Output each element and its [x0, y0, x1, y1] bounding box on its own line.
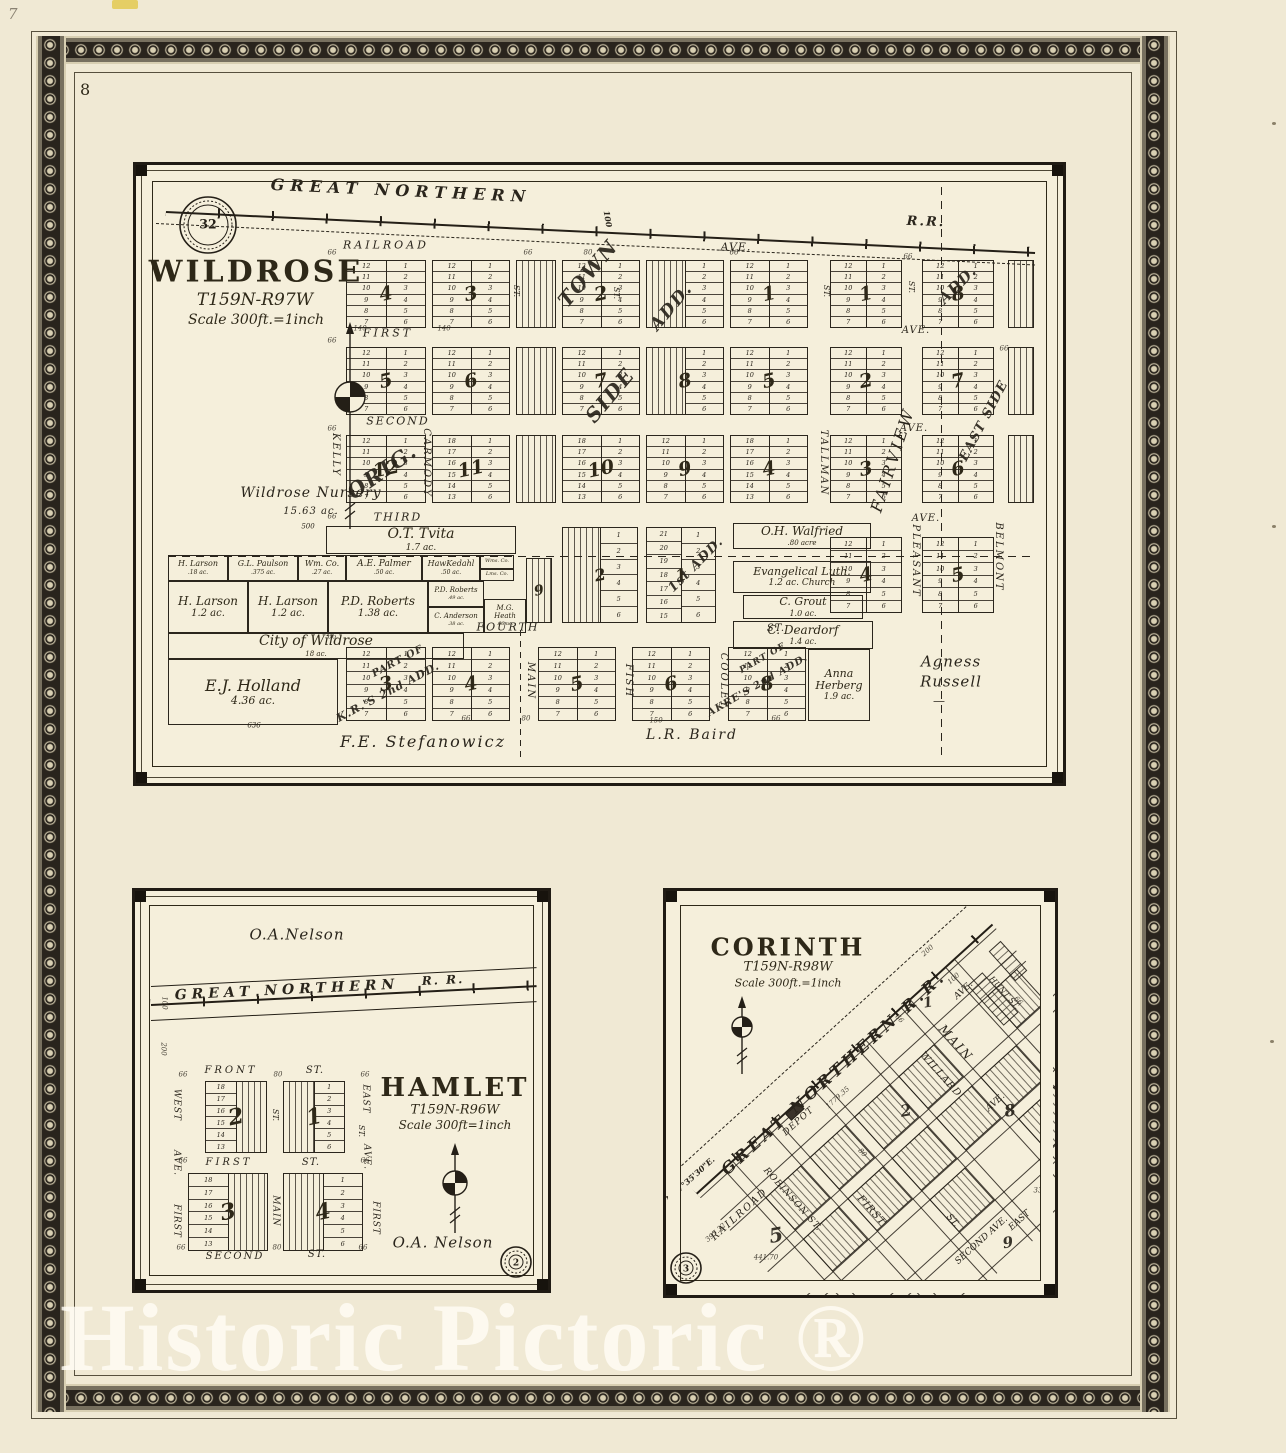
compass-rose — [725, 994, 759, 1080]
owner-label: 636 — [247, 723, 260, 730]
owner-label: Agness — [921, 655, 981, 670]
svg-text:32: 32 — [199, 217, 217, 232]
lot-number: 2 — [387, 358, 426, 369]
lot-number: 11 — [731, 358, 769, 369]
parcel-area: .375 ac. — [251, 569, 275, 576]
lot-number: 6 — [472, 491, 510, 502]
wildrose-title: WILDROSE — [149, 255, 363, 290]
parcel-area: 18 ac. — [305, 650, 326, 658]
lot-number: 5 — [578, 696, 616, 708]
lot-number: 18 — [731, 436, 769, 446]
owner-name: G.L. Paulson — [238, 560, 289, 569]
lot-number: 5 — [867, 587, 902, 600]
lot-number: 6 — [686, 403, 724, 414]
lot-number: 6 — [578, 708, 616, 720]
lot-number: 5 — [472, 305, 510, 316]
lot-number: 1 — [867, 348, 902, 358]
lot-number: 5 — [324, 1224, 363, 1237]
owner-name: P.D. Roberts — [341, 595, 415, 608]
street-label: EAST — [361, 1084, 370, 1113]
lot-number: 14 — [189, 1224, 228, 1237]
lot-number: 18 — [206, 1082, 236, 1093]
lot-number: 6 — [959, 600, 994, 613]
street-label: FIRST — [363, 328, 413, 339]
street-label: ST. — [302, 1158, 320, 1168]
dimension-label: 66 — [361, 1072, 370, 1079]
plat-block — [1008, 435, 1034, 503]
lot-number: 6 — [601, 606, 638, 622]
parcel-area: .50 ac. — [374, 569, 394, 576]
lot-number: 7 — [731, 403, 769, 414]
dimension-label: 100 — [161, 996, 168, 1009]
lot-number: 17 — [189, 1186, 228, 1199]
lot-number: 6 — [672, 708, 710, 720]
lot-number: 12 — [831, 436, 866, 446]
corner-square — [136, 165, 147, 176]
lot-number: 6 — [867, 316, 902, 327]
owner-label: L.R. Baird — [646, 728, 738, 742]
lot-number: 8 — [433, 392, 471, 403]
dimension-label: 66 — [524, 250, 533, 257]
street-label: WEST — [172, 1089, 181, 1121]
lot-number: 7 — [433, 403, 471, 414]
owner-label: O.A.Nelson — [250, 928, 345, 943]
street-label: PLEASANT — [910, 524, 920, 597]
lot-number: 14 — [731, 480, 769, 491]
owner-name: City of Wildrose — [259, 634, 373, 649]
lot-number: 6 — [315, 1140, 345, 1152]
lot-number: 6 — [387, 403, 426, 414]
lot-number: 2 — [770, 271, 808, 282]
owner-name: Lms. Co. — [486, 572, 508, 578]
hamlet-title: HAMLET — [381, 1073, 530, 1103]
parcel-area: 1.38 ac. — [358, 608, 398, 619]
lot-number: 6 — [472, 403, 510, 414]
lot-number: 5 — [472, 392, 510, 403]
lot-number: 12 — [923, 538, 958, 550]
dimension-label: 66 — [1000, 346, 1009, 353]
plat-block — [516, 435, 556, 503]
lot-number: 5 — [959, 305, 994, 316]
parcel-area: .38 ac. — [448, 621, 465, 627]
section-stamp: 2 — [498, 1244, 534, 1280]
parcel-area: .80 acre — [788, 539, 817, 547]
lot-number: 7 — [647, 491, 685, 502]
lot-number: 11 — [923, 550, 958, 563]
lot-number: 17 — [731, 446, 769, 457]
lot-number: 6 — [472, 316, 510, 327]
plat-block: 1211109871234569 — [646, 435, 724, 503]
owner-name: Anna Herberg — [809, 668, 869, 692]
lot-number: 1 — [472, 261, 510, 271]
lot-number: 11 — [433, 271, 471, 282]
dimension-label: 66 — [179, 1072, 188, 1079]
owner-label: F.E. Stefanowicz — [340, 734, 506, 750]
margin-dot — [1272, 525, 1276, 528]
plat-block: 1211109871234561 — [730, 260, 808, 328]
lot-number: 2 — [686, 271, 724, 282]
street-label: ST. — [308, 1250, 326, 1260]
street-label: FRONT — [204, 1066, 257, 1076]
lot-number: 7 — [731, 316, 769, 327]
lot-number: 5 — [672, 696, 710, 708]
lot-number: 5 — [959, 480, 994, 491]
lot-number: 6 — [682, 606, 716, 622]
watermark: Historic Pictoric ® — [60, 1282, 868, 1393]
lot-number: 6 — [867, 600, 902, 613]
lot-number: 1 — [770, 348, 808, 358]
dimension-label: 66 — [359, 1245, 368, 1252]
railroad-label: GREAT NORTHERN — [270, 177, 531, 205]
lot-number: 2 — [672, 659, 710, 671]
lot-number: 1 — [472, 348, 510, 358]
street-label: AVE. — [902, 326, 930, 336]
svg-text:3: 3 — [683, 1265, 689, 1275]
lot-number: 1 — [472, 436, 510, 446]
plat-block: 1234562 — [562, 527, 638, 623]
owner-name: O.T. Tvita — [388, 527, 455, 542]
street-label: ST. — [512, 285, 520, 297]
owner-parcel: Wm. Co..27 ac. — [298, 555, 346, 581]
owner-parcel: H. Larson1.2 ac. — [248, 581, 328, 633]
lot-number: 12 — [539, 648, 577, 659]
owner-parcel: O.H. Walfried.80 acre — [733, 523, 871, 549]
corner-square — [666, 891, 677, 902]
corner-square — [537, 891, 548, 902]
lot-number: 1 — [867, 538, 902, 550]
lot-number: 18 — [189, 1174, 228, 1186]
lot-number: 11 — [923, 358, 958, 369]
owner-name: C. Grout — [779, 596, 826, 608]
parcel-area: 1.9 ac. — [824, 692, 854, 702]
owner-label: Russell — [920, 675, 982, 690]
street-label: ST. — [357, 1125, 365, 1137]
owner-parcel: A.E. Palmer.50 ac. — [346, 555, 422, 581]
lot-number: 7 — [539, 708, 577, 720]
lot-number: 6 — [387, 316, 426, 327]
lot-number: 8 — [831, 392, 866, 403]
lot-number: 1 — [315, 1082, 345, 1093]
lot-number: 12 — [831, 348, 866, 358]
street-label: SECOND — [206, 1252, 265, 1262]
owner-parcel: H. Larson1.2 ac. — [168, 581, 248, 633]
street-label: FIRST — [206, 1158, 253, 1168]
lot-number: 2 — [959, 550, 994, 563]
lot-number: 1 — [686, 261, 724, 271]
lot-number: 11 — [539, 659, 577, 671]
lot-number: 2 — [601, 543, 638, 559]
lot-number: 5 — [768, 696, 806, 708]
corinth-plat-map: CORINTH T159N-R98W Scale 300ft.=1inch GR… — [663, 888, 1058, 1298]
parcel-area: 1.2 ac. — [191, 608, 225, 619]
dimension-label: 66 — [730, 250, 739, 257]
parcel-area: 4.36 ac. — [231, 694, 275, 707]
owner-name: E.J. Holland — [205, 677, 301, 695]
lot-number: 12 — [831, 261, 866, 271]
lot-number: 8 — [831, 480, 866, 491]
lot-number: 5 — [682, 590, 716, 606]
lot-strip — [929, 1167, 994, 1232]
owner-name: C. Anderson — [434, 613, 477, 621]
lot-number: 2 — [867, 358, 902, 369]
map-margin — [1041, 893, 1053, 1293]
dimension-label: 66 — [361, 1158, 370, 1165]
lot-number: 12 — [731, 261, 769, 271]
street-label: AVE. — [912, 514, 940, 524]
lot-number: 2 — [867, 550, 902, 563]
lot-number: 11 — [433, 358, 471, 369]
dimension-label: 80 — [522, 716, 531, 723]
lot-number: 12 — [433, 348, 471, 358]
lot-number: 17 — [433, 446, 471, 457]
lot-number: 17 — [563, 446, 601, 457]
lot-number: 6 — [770, 316, 808, 327]
lot-number: 1 — [472, 648, 510, 659]
lot-number: 2 — [602, 271, 640, 282]
corinth-township: T159N-R98W — [744, 960, 833, 975]
owner-name: Wms. Co. — [485, 559, 509, 565]
lot-number: 8 — [347, 305, 386, 316]
lot-number: 11 — [647, 446, 685, 457]
lot-number: 2 — [387, 271, 426, 282]
lot-number: 11 — [923, 446, 958, 457]
lot-number: 7 — [923, 491, 958, 502]
lot-number: 12 — [563, 348, 601, 358]
lot-number: 8 — [923, 305, 958, 316]
hamlet-plat-map: HAMLET T159N-R96W Scale 300ft=1inch GREA… — [132, 888, 551, 1293]
lot-number: 7 — [831, 316, 866, 327]
lot-number: 12 — [633, 648, 671, 659]
lot-number: 8 — [539, 696, 577, 708]
lot-number: 5 — [387, 305, 426, 316]
lot-number: 15 — [647, 608, 681, 622]
lot-number: 6 — [959, 491, 994, 502]
lot-number: 5 — [867, 305, 902, 316]
owner-name: H. Larson — [178, 595, 238, 608]
street-label: ST. — [907, 281, 915, 293]
owner-label: — — [933, 695, 945, 707]
owner-parcel: P.D. Roberts.49 ac. — [428, 581, 484, 607]
parcel-area: .50 ac. — [441, 569, 461, 576]
lot-number: 2 — [472, 271, 510, 282]
lot-number: 8 — [831, 305, 866, 316]
lot-number: 1 — [387, 261, 426, 271]
corner-square — [1052, 772, 1063, 783]
parcel-area: 1.2 ac. — [271, 608, 305, 619]
lot-number: 5 — [601, 590, 638, 606]
lot-number: 6 — [472, 708, 510, 720]
railroad-label: R.R. — [906, 215, 945, 229]
lot-number: 5 — [770, 480, 808, 491]
lot-number: 2 — [578, 659, 616, 671]
block-number: 9 — [533, 582, 546, 600]
lot-number: 2 — [472, 358, 510, 369]
lot-number: 11 — [633, 659, 671, 671]
lot-number: 1 — [686, 348, 724, 358]
plat-block: 1211109871234562 — [830, 347, 902, 415]
plat-block: 1234561 — [283, 1081, 345, 1153]
compass-rose — [438, 1141, 472, 1239]
street-label: FOURTH — [477, 622, 540, 633]
street-label: THIRD — [374, 512, 422, 523]
plat-block — [1008, 347, 1034, 415]
lot-number: 1 — [959, 348, 994, 358]
lot-number: 8 — [433, 696, 471, 708]
lot-strip — [892, 1126, 957, 1191]
lot-number: 5 — [602, 305, 640, 316]
lot-number: 1 — [770, 261, 808, 271]
dimension-label: 80 — [273, 1245, 282, 1252]
lot-number: 12 — [923, 436, 958, 446]
parcel-area: .18 ac. — [188, 569, 208, 576]
compass-rose — [333, 320, 367, 535]
street-label: RAILROAD — [343, 240, 429, 251]
margin-dot — [1270, 1040, 1274, 1043]
dimension-label: 80 — [274, 1072, 283, 1079]
lot-number: 8 — [923, 587, 958, 600]
wildrose-plat-map: WILDROSE T159N-R97W Scale 300ft.=1inch G… — [133, 162, 1066, 786]
lot-number: 12 — [433, 261, 471, 271]
railroad-label: 100 — [603, 210, 614, 228]
street-label: ST. — [612, 287, 620, 299]
lot-number: 13 — [189, 1237, 228, 1250]
lot-number: 1 — [672, 648, 710, 659]
owner-parcel: E.J. Holland4.36 ac. — [168, 659, 338, 725]
owner-name: A.E. Palmer — [357, 560, 411, 570]
owner-parcel: Wms. Co. — [480, 555, 514, 569]
owner-parcel: Evangelical Luth.1.2 ac. Church — [733, 561, 871, 593]
lot-number: 1 — [867, 261, 902, 271]
lot-number: 16 — [647, 595, 681, 609]
lot-number: 5 — [602, 480, 640, 491]
lot-number: 5 — [686, 480, 724, 491]
lot-number: 6 — [686, 491, 724, 502]
lot-number: 2 — [867, 271, 902, 282]
section-stamp: 3 — [668, 1250, 704, 1286]
lot-number: 1 — [959, 538, 994, 550]
corner-square — [136, 772, 147, 783]
parcel-area: .49 ac. — [448, 595, 465, 601]
hamlet-township: T159N-R96W — [411, 1103, 500, 1118]
lot-number: 5 — [686, 305, 724, 316]
plat-block: 1211109871234566 — [632, 647, 710, 721]
lot-number: 12 — [731, 348, 769, 358]
lot-number: 5 — [770, 392, 808, 403]
lot-number: 6 — [324, 1237, 363, 1250]
plat-block: 9 — [526, 558, 552, 623]
lot-number: 7 — [729, 708, 767, 720]
dimension-label: 66 — [904, 254, 913, 261]
svg-text:2: 2 — [513, 1259, 519, 1269]
plat-block: 18171615141312345610 — [562, 435, 640, 503]
railroad-line — [520, 625, 521, 757]
lot-number: 18 — [563, 436, 601, 446]
lot-number: 1 — [578, 648, 616, 659]
street-label: ST. — [306, 1066, 324, 1076]
street-label: BELMONT — [993, 522, 1003, 591]
owner-name: HawKedahl — [428, 560, 475, 569]
parcel-area: .27 ac. — [312, 569, 332, 576]
lot-number: 17 — [206, 1093, 236, 1105]
lot-number: 12 — [923, 348, 958, 358]
lot-number: 8 — [923, 392, 958, 403]
dimension-label: 200 — [160, 1042, 167, 1055]
lot-number: 2 — [770, 358, 808, 369]
paper-speck — [112, 0, 138, 9]
lot-number: 5 — [867, 392, 902, 403]
plat-block: 1817161514131234564 — [730, 435, 808, 503]
lot-number: 8 — [731, 392, 769, 403]
corinth-title: CORINTH — [711, 933, 866, 962]
lot-number: 5 — [686, 392, 724, 403]
street-label: FIRST — [371, 1201, 380, 1235]
dimension-label: 66 — [179, 1158, 188, 1165]
owner-name: Evangelical Luth. — [753, 566, 851, 578]
lot-number: 2 — [472, 659, 510, 671]
corner-square — [1052, 165, 1063, 176]
dimension-label: 80 — [584, 250, 593, 257]
owner-parcel: C. Grout1.0 ac. — [743, 595, 863, 619]
owner-name: P.D. Roberts — [434, 587, 477, 595]
owner-parcel: P.D. Roberts1.38 ac. — [328, 581, 428, 633]
lot-number: 5 — [387, 480, 426, 491]
dimension-label: 140 — [437, 326, 450, 333]
lot-number: 2 — [770, 446, 808, 457]
street-label: TALLMAN — [818, 430, 828, 497]
lot-number: 7 — [831, 403, 866, 414]
lot-number: 2 — [686, 446, 724, 457]
parcel-area: 1.2 ac. Church — [769, 578, 836, 588]
lot-number: 12 — [923, 261, 958, 271]
plat-block: 1817161514132 — [205, 1081, 267, 1153]
lot-number: 8 — [731, 305, 769, 316]
lot-number: 1 — [602, 436, 640, 446]
lot-number: 13 — [731, 491, 769, 502]
lot-number: 8 — [433, 305, 471, 316]
lot-number: 6 — [387, 708, 426, 720]
plat-block: 18171615141312345611 — [432, 435, 510, 503]
dimension-label: 66 — [462, 716, 471, 723]
lot-strip — [810, 1125, 875, 1190]
plat-block — [1008, 260, 1034, 328]
lot-number: 7 — [923, 403, 958, 414]
lot-number: 5 — [472, 480, 510, 491]
corinth-scale: Scale 300ft.=1inch — [735, 977, 842, 990]
lot-number: 13 — [563, 491, 601, 502]
plat-block: 1234568 — [646, 347, 724, 415]
section-stamp: 32 — [177, 194, 239, 256]
lot-number: 6 — [387, 491, 426, 502]
owner-name: Wm. Co. — [305, 560, 339, 569]
plat-block: 1211109871234565 — [538, 647, 616, 721]
lot-number: 11 — [731, 271, 769, 282]
dimension-label: 66 — [177, 1245, 186, 1252]
map-margin — [668, 893, 1053, 905]
corner-square — [135, 891, 146, 902]
lot-number: 2 — [324, 1186, 363, 1199]
street-label: MAIN — [271, 1195, 280, 1226]
dimension-label: 66 — [328, 634, 337, 641]
lot-number: 11 — [831, 358, 866, 369]
parcel-area: 1.7 ac. — [406, 543, 436, 553]
lot-number: 7 — [563, 316, 601, 327]
lot-number: 6 — [770, 491, 808, 502]
lot-number: 1 — [387, 348, 426, 358]
lot-number: 1 — [324, 1174, 363, 1186]
map-margin — [668, 893, 680, 1293]
dimension-label: 441.70 — [754, 1255, 779, 1262]
street-label: ST. — [767, 624, 785, 634]
